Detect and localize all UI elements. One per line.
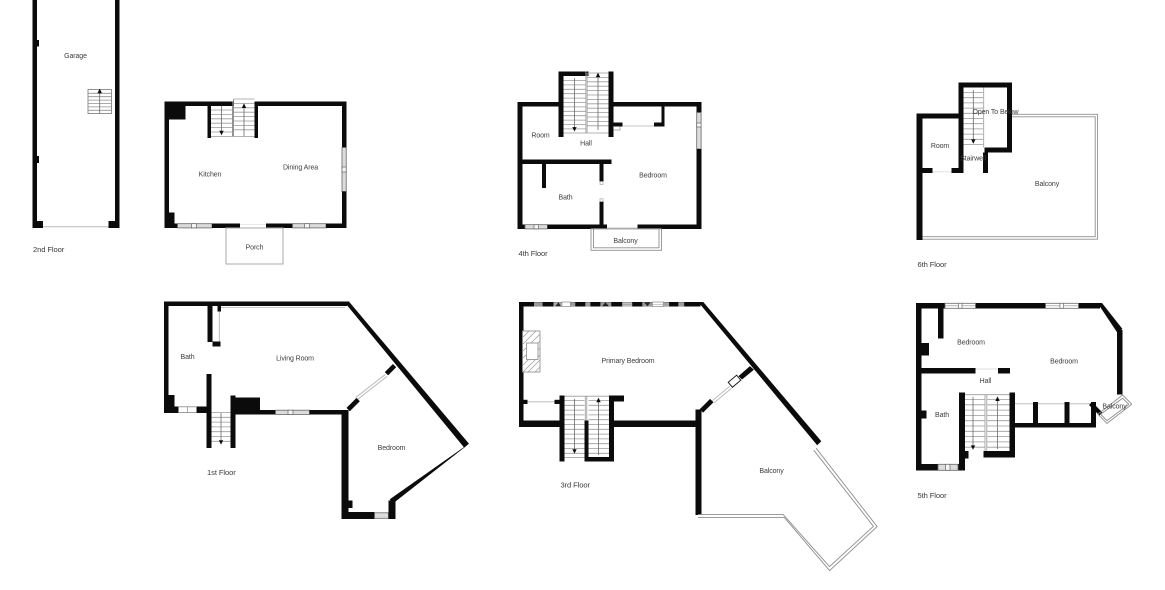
svg-text:Bath: Bath	[935, 412, 949, 419]
svg-text:4th Floor: 4th Floor	[519, 249, 549, 258]
svg-text:Bedroom: Bedroom	[1050, 359, 1078, 366]
svg-text:Balcony: Balcony	[1035, 181, 1060, 188]
svg-text:Living Room: Living Room	[276, 356, 314, 363]
svg-text:Hall: Hall	[580, 141, 592, 148]
svg-text:Balcony: Balcony	[1102, 404, 1127, 411]
svg-text:6th Floor: 6th Floor	[918, 260, 948, 269]
svg-text:Porch: Porch	[246, 245, 264, 252]
svg-text:Hall: Hall	[980, 378, 992, 385]
svg-text:1st Floor: 1st Floor	[207, 468, 236, 477]
svg-text:Balcony: Balcony	[759, 468, 784, 475]
svg-text:Kitchen: Kitchen	[199, 172, 222, 179]
svg-text:Room: Room	[931, 143, 950, 150]
svg-text:5th Floor: 5th Floor	[918, 491, 948, 500]
svg-text:Primary Bedroom: Primary Bedroom	[602, 358, 655, 365]
svg-text:Open To Below: Open To Below	[972, 109, 1019, 116]
svg-text:Bedroom: Bedroom	[639, 173, 667, 180]
svg-text:Garage: Garage	[64, 53, 87, 60]
svg-text:2nd Floor: 2nd Floor	[33, 245, 65, 254]
svg-text:Bedroom: Bedroom	[378, 445, 406, 452]
svg-text:Bath: Bath	[181, 354, 195, 361]
svg-text:3rd Floor: 3rd Floor	[561, 481, 591, 490]
svg-text:Bedroom: Bedroom	[957, 340, 985, 347]
svg-text:Room: Room	[531, 133, 550, 140]
svg-text:Dining Area: Dining Area	[283, 165, 318, 172]
svg-text:Balcony: Balcony	[613, 238, 638, 245]
svg-text:Stairwell: Stairwell	[960, 156, 986, 163]
svg-text:Bath: Bath	[559, 195, 573, 202]
